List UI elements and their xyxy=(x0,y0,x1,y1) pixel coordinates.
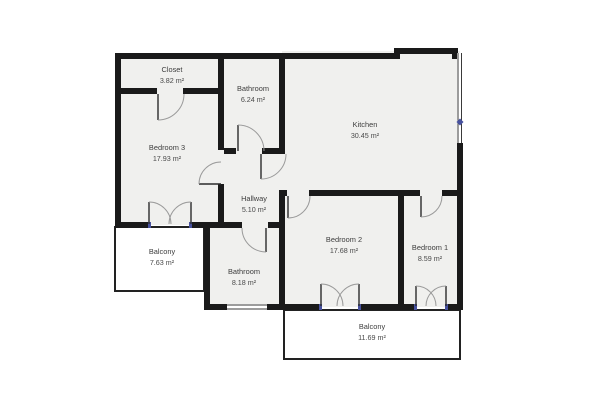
label-bedroom3-area: 17.93 m² xyxy=(153,154,182,163)
label-balcony-left-name: Balcony xyxy=(149,247,176,256)
wall-bathtop-1 xyxy=(224,148,236,154)
wall-bottom-seg-3 xyxy=(360,304,415,310)
wall-kitchen-bottom-3 xyxy=(442,190,457,196)
label-balcony-left-area: 7.63 m² xyxy=(150,258,175,267)
window-kitchen-right xyxy=(456,53,463,143)
floor-plan-canvas: Closet 3.82 m² Bathroom 6.24 m² Kitchen … xyxy=(0,0,600,400)
label-bathroom-top-name: Bathroom xyxy=(237,84,269,93)
wall-bedroom3-bottom-1 xyxy=(115,222,148,228)
label-bedroom3-name: Bedroom 3 xyxy=(149,143,185,152)
label-hallway-area: 5.10 m² xyxy=(242,205,267,214)
wall-bedroom3-bottom-2 xyxy=(192,222,210,228)
label-bedroom2-area: 17.68 m² xyxy=(330,246,359,255)
floor-plan-svg: Closet 3.82 m² Bathroom 6.24 m² Kitchen … xyxy=(0,0,600,400)
wall-kitchen-bottom-2 xyxy=(309,190,420,196)
wall-bottom-seg-4 xyxy=(447,304,463,310)
room-bathroom-bottom xyxy=(207,225,282,307)
wall-bathbottom-left xyxy=(204,222,210,310)
wall-left xyxy=(115,53,121,227)
label-bathroom-bottom-area: 8.18 m² xyxy=(232,278,257,287)
label-bedroom2-name: Bedroom 2 xyxy=(326,235,362,244)
window-bathroom-bottom xyxy=(227,304,267,310)
wall-top-right xyxy=(394,48,458,54)
label-hallway-name: Hallway xyxy=(241,194,267,203)
wall-bedroom2-left xyxy=(279,190,285,310)
label-bathroom-top-area: 6.24 m² xyxy=(241,95,266,104)
label-balcony-bottom-area: 11.69 m² xyxy=(358,333,386,342)
wall-bedroom-divider xyxy=(398,196,404,304)
wall-closet-2 xyxy=(183,88,218,94)
wall-closet-1 xyxy=(121,88,157,94)
wall-bathbottom-top-2 xyxy=(268,222,282,228)
label-balcony-bottom-name: Balcony xyxy=(359,322,386,331)
label-bedroom1-name: Bedroom 1 xyxy=(412,243,448,252)
wall-top-step xyxy=(394,48,400,59)
wall-bedroom3-right-lower xyxy=(218,184,224,228)
label-kitchen-name: Kitchen xyxy=(353,120,378,129)
wall-right xyxy=(457,143,463,310)
label-bedroom1-area: 8.59 m² xyxy=(418,254,443,263)
label-closet-area: 3.82 m² xyxy=(160,76,185,85)
wall-kitchen-left xyxy=(279,59,285,154)
wall-bedroom3-right-upper xyxy=(218,59,224,150)
wall-bottom-seg-2 xyxy=(267,304,320,310)
wall-top-left xyxy=(115,53,398,59)
label-kitchen-area: 30.45 m² xyxy=(351,131,380,140)
label-bathroom-bottom-name: Bathroom xyxy=(228,267,260,276)
label-closet-name: Closet xyxy=(162,65,183,74)
